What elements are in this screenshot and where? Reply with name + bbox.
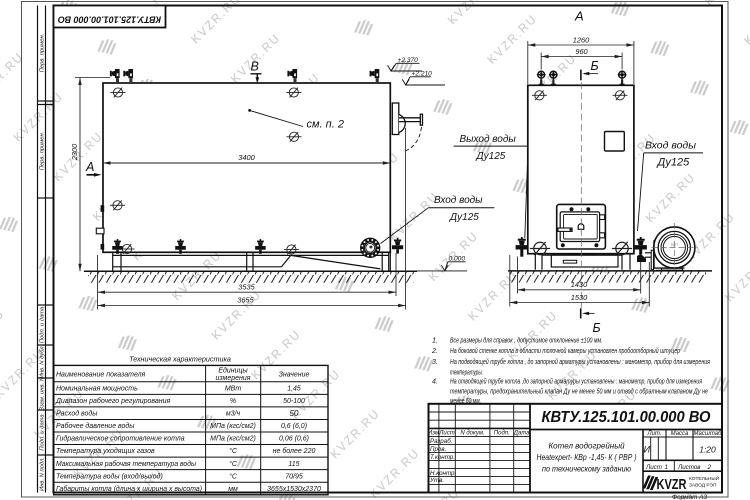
svg-text:+2.370: +2.370 bbox=[398, 57, 419, 64]
svg-text:1.: 1. bbox=[432, 337, 438, 345]
svg-text:Максимальная рабочая температу: Максимальная рабочая температура воды bbox=[56, 460, 197, 468]
svg-text:И: И bbox=[644, 445, 651, 455]
svg-text:Н.контр.: Н.контр. bbox=[430, 470, 456, 477]
svg-text:Утв.: Утв. bbox=[429, 477, 444, 484]
svg-text:Наименование показателя: Наименование показателя bbox=[56, 372, 146, 379]
svg-text:Heatexpert- КВр -1,45- К ( РВР: Heatexpert- КВр -1,45- К ( РВР ) bbox=[537, 453, 637, 462]
svg-text:Ду125: Ду125 bbox=[476, 151, 506, 162]
svg-text:Подп. и дата: Подп. и дата bbox=[40, 306, 46, 343]
svg-text:КВТУ.125.101.00.000 ВО: КВТУ.125.101.00.000 ВО bbox=[542, 409, 712, 426]
svg-text:температуры.: температуры. bbox=[450, 368, 483, 376]
svg-text:50-100: 50-100 bbox=[283, 398, 305, 405]
svg-text:2300: 2300 bbox=[70, 143, 79, 161]
svg-text:ВДН: ВДН bbox=[671, 243, 679, 247]
svg-text:Инв. N дубл.: Инв. N дубл. bbox=[40, 345, 46, 379]
svg-text:%: % bbox=[230, 398, 236, 405]
svg-text:Б: Б bbox=[593, 321, 601, 335]
svg-text:Гидравлическое сопротивление к: Гидравлическое сопротивление котла bbox=[56, 435, 185, 443]
svg-text:Изм: Изм bbox=[428, 430, 439, 436]
svg-text:4.: 4. bbox=[432, 378, 438, 386]
svg-text:3.: 3. bbox=[432, 358, 438, 366]
svg-text:Масса: Масса bbox=[671, 431, 689, 437]
svg-text:ЗАВОД РЭП: ЗАВОД РЭП bbox=[689, 483, 717, 489]
svg-text:МВт: МВт bbox=[225, 386, 242, 393]
svg-text:по техническому заданию: по техническому заданию bbox=[542, 464, 631, 473]
svg-text:Взам. инв. N: Взам. инв. N bbox=[40, 376, 46, 411]
svg-text:На подводящей трубе котла ,: На подводящей трубе котла , до запорной … bbox=[450, 358, 710, 366]
svg-text:960: 960 bbox=[575, 47, 588, 56]
svg-text:°С: °С bbox=[229, 460, 238, 468]
svg-text:Вход воды: Вход воды bbox=[434, 195, 483, 206]
svg-text:мм: мм bbox=[228, 486, 238, 493]
svg-text:1,45: 1,45 bbox=[287, 386, 301, 393]
svg-text:°С: °С bbox=[229, 447, 238, 455]
svg-text:температуры, предохранительный: температуры, предохранительный клапан Ду… bbox=[450, 388, 708, 396]
svg-text:Котел водогрейный: Котел водогрейный bbox=[548, 441, 625, 450]
svg-text:N докум.: N докум. bbox=[460, 430, 484, 436]
svg-text:0,06 (0,6): 0,06 (0,6) bbox=[279, 436, 309, 443]
svg-text:Диапазон рабочего регулировани: Диапазон рабочего регулирования bbox=[55, 397, 171, 405]
svg-text:Подп.: Подп. bbox=[494, 430, 510, 436]
svg-text:Значение: Значение bbox=[279, 372, 310, 379]
svg-text:Ду125: Ду125 bbox=[449, 212, 479, 223]
svg-text:Разраб.: Разраб. bbox=[430, 438, 452, 445]
svg-text:3655: 3655 bbox=[237, 296, 254, 305]
svg-text:1430: 1430 bbox=[571, 280, 588, 289]
svg-text:КВТУ.125.101.00.000 ВО: КВТУ.125.101.00.000 ВО bbox=[58, 14, 161, 24]
svg-text:В: В bbox=[251, 60, 259, 74]
svg-text:115: 115 bbox=[288, 461, 299, 468]
svg-text:Масштаб: Масштаб bbox=[693, 431, 722, 437]
svg-text:1: 1 bbox=[665, 464, 668, 471]
svg-text:Формат А3: Формат А3 bbox=[672, 494, 707, 500]
svg-text:На отводящей трубе котла ,до з: На отводящей трубе котла ,до запорной ар… bbox=[450, 378, 702, 386]
svg-text:2: 2 bbox=[707, 464, 712, 471]
svg-text:А: А bbox=[574, 9, 584, 24]
svg-text:0,6 (6,0): 0,6 (6,0) bbox=[281, 423, 307, 430]
svg-text:Габариты котла (длина х ширина: Габариты котла (длина х ширина х высота) bbox=[56, 485, 202, 493]
svg-text:Техническая характеристика: Техническая характеристика bbox=[129, 355, 231, 364]
svg-text:Температура уходящих газов: Температура уходящих газов bbox=[56, 447, 155, 455]
svg-text:Лист: Лист bbox=[438, 430, 454, 436]
svg-text:50: 50 bbox=[290, 409, 299, 418]
svg-text:Листов: Листов bbox=[677, 464, 701, 471]
svg-text:Т.контр.: Т.контр. bbox=[430, 454, 455, 461]
svg-text:МПа (кгс/см2): МПа (кгс/см2) bbox=[210, 423, 256, 430]
svg-text:Перв. примен.: Перв. примен. bbox=[40, 132, 46, 171]
svg-text:Дата: Дата bbox=[513, 430, 530, 436]
svg-text:1:20: 1:20 bbox=[699, 445, 716, 455]
svg-text:МПа (кгс/см2): МПа (кгс/см2) bbox=[210, 436, 256, 443]
svg-text:0.000: 0.000 bbox=[449, 255, 466, 262]
svg-text:Номинальная мощность: Номинальная мощность bbox=[56, 386, 138, 393]
svg-text:см. п. 2: см. п. 2 bbox=[307, 119, 344, 131]
svg-text:Выход воды: Выход воды bbox=[460, 134, 517, 145]
svg-text:1530: 1530 bbox=[571, 293, 588, 302]
svg-text:+2.210: +2.210 bbox=[412, 70, 433, 77]
svg-text:Все размеры для справок , допу: Все размеры для справок , допустимое отк… bbox=[450, 337, 603, 345]
svg-text:не более 220: не более 220 bbox=[273, 447, 316, 455]
svg-text:Подп. и дата: Подп. и дата bbox=[40, 414, 46, 451]
svg-text:°С: °С bbox=[229, 472, 238, 480]
svg-text:KVZR: KVZR bbox=[657, 476, 687, 493]
svg-text:Рабочее давление воды: Рабочее давление воды bbox=[56, 422, 135, 430]
svg-text:измерения: измерения bbox=[215, 375, 250, 382]
svg-text:1260: 1260 bbox=[573, 35, 590, 44]
svg-text:Расход воды: Расход воды bbox=[56, 410, 98, 418]
svg-text:А: А bbox=[85, 160, 94, 174]
svg-text:Единицы: Единицы bbox=[218, 367, 248, 375]
svg-text:Температура воды (вход/выход): Температура воды (вход/выход) bbox=[56, 472, 163, 480]
svg-text:Б: Б bbox=[591, 59, 599, 73]
svg-text:Ду125: Ду125 bbox=[656, 157, 691, 169]
svg-text:3535: 3535 bbox=[238, 282, 255, 291]
svg-text:70/95: 70/95 bbox=[285, 473, 303, 480]
svg-text:Вход воды: Вход воды bbox=[645, 140, 696, 152]
svg-text:Инв. N подл.: Инв. N подл. bbox=[40, 457, 46, 491]
svg-text:На боковой стенке котла в обла: На боковой стенке котла в области топочн… bbox=[450, 347, 680, 355]
svg-text:3400: 3400 bbox=[238, 153, 255, 162]
svg-text:Лит.: Лит. bbox=[646, 431, 661, 437]
svg-text:Пров.: Пров. bbox=[430, 446, 446, 453]
svg-text:3655х1530х2370: 3655х1530х2370 bbox=[267, 486, 321, 493]
svg-text:Лист: Лист bbox=[645, 464, 662, 471]
svg-text:Перв. примен.: Перв. примен. bbox=[40, 34, 46, 73]
svg-text:2.: 2. bbox=[431, 347, 438, 355]
svg-text:м3/ч: м3/ч bbox=[226, 411, 241, 418]
